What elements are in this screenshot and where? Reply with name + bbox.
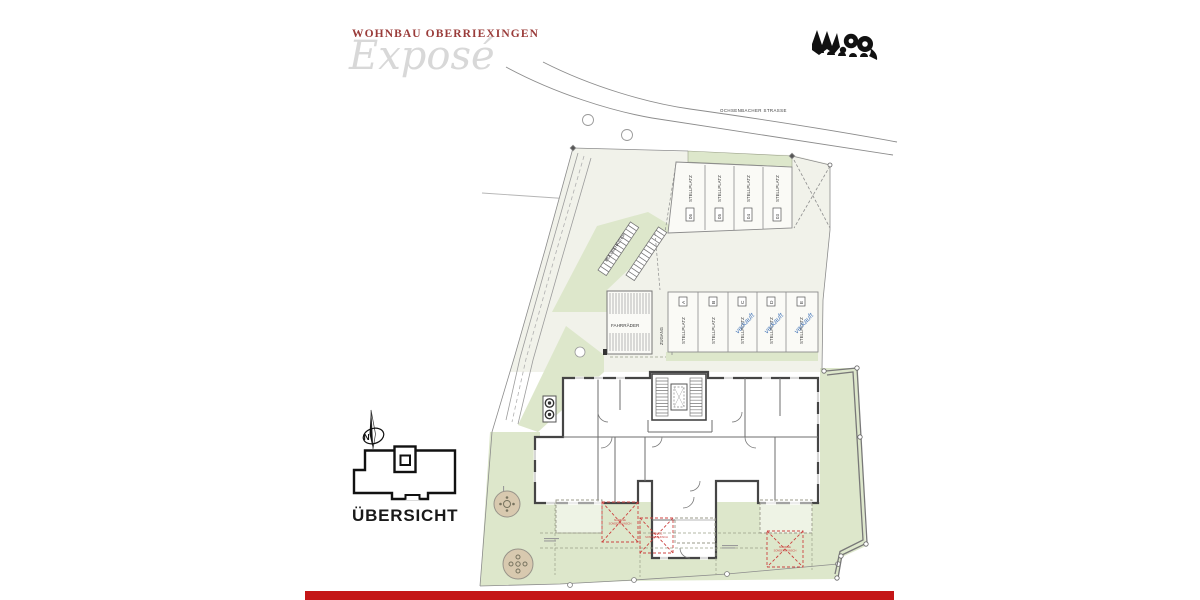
stall-letter: E	[799, 301, 805, 304]
stall-label: STELLPLATZ	[775, 175, 780, 202]
compass-letter: N	[364, 432, 370, 442]
stall-label: STELLPLATZ	[711, 317, 716, 344]
stall-label: STELLPLATZ	[681, 317, 686, 344]
svg-text:SONDERWUNSCH: SONDERWUNSCH	[774, 548, 797, 552]
lower-parking: A B C D E STELLPLATZ STELLPLATZ STELLPLA…	[668, 292, 818, 352]
stall-number: 05	[717, 214, 722, 219]
overview-label: ÜBERSICHT	[352, 506, 458, 525]
stall-label: STELLPLATZ	[746, 175, 751, 202]
stall-label: STELLPLATZ	[717, 175, 722, 202]
expose-page: WOHNBAU OBERRIEXINGEN Exposé	[0, 0, 1200, 600]
equipment-box	[543, 396, 556, 422]
access-label: ZUGANG	[659, 327, 664, 345]
stall-label: STELLPLATZ	[688, 175, 693, 202]
stall-number: 03	[775, 214, 780, 219]
stall-letter: B	[711, 301, 717, 304]
svg-text:MARKISE: MARKISE	[651, 532, 663, 536]
stall-number: 06	[688, 214, 693, 219]
svg-text:MARKISE: MARKISE	[779, 545, 791, 549]
stair-core	[652, 374, 706, 420]
stall-letter: D	[769, 300, 775, 304]
north-arrow-icon: N	[361, 410, 386, 449]
building-pictogram-icon	[354, 447, 455, 501]
street-label: OCHSENBACHER STRASSE	[720, 108, 787, 113]
svg-text:SONDERWUNSCH: SONDERWUNSCH	[609, 521, 632, 525]
bike-label: FAHRRÄDER	[611, 322, 640, 328]
stall-letter: C	[740, 300, 746, 304]
stall-number: 04	[746, 214, 751, 219]
svg-text:MARKISE: MARKISE	[614, 518, 626, 522]
svg-text:SONDERWUNSCH: SONDERWUNSCH	[645, 535, 668, 539]
site-plan: OCHSENBACHER STRASSE	[0, 0, 1200, 600]
brand-logo-icon	[812, 30, 877, 60]
